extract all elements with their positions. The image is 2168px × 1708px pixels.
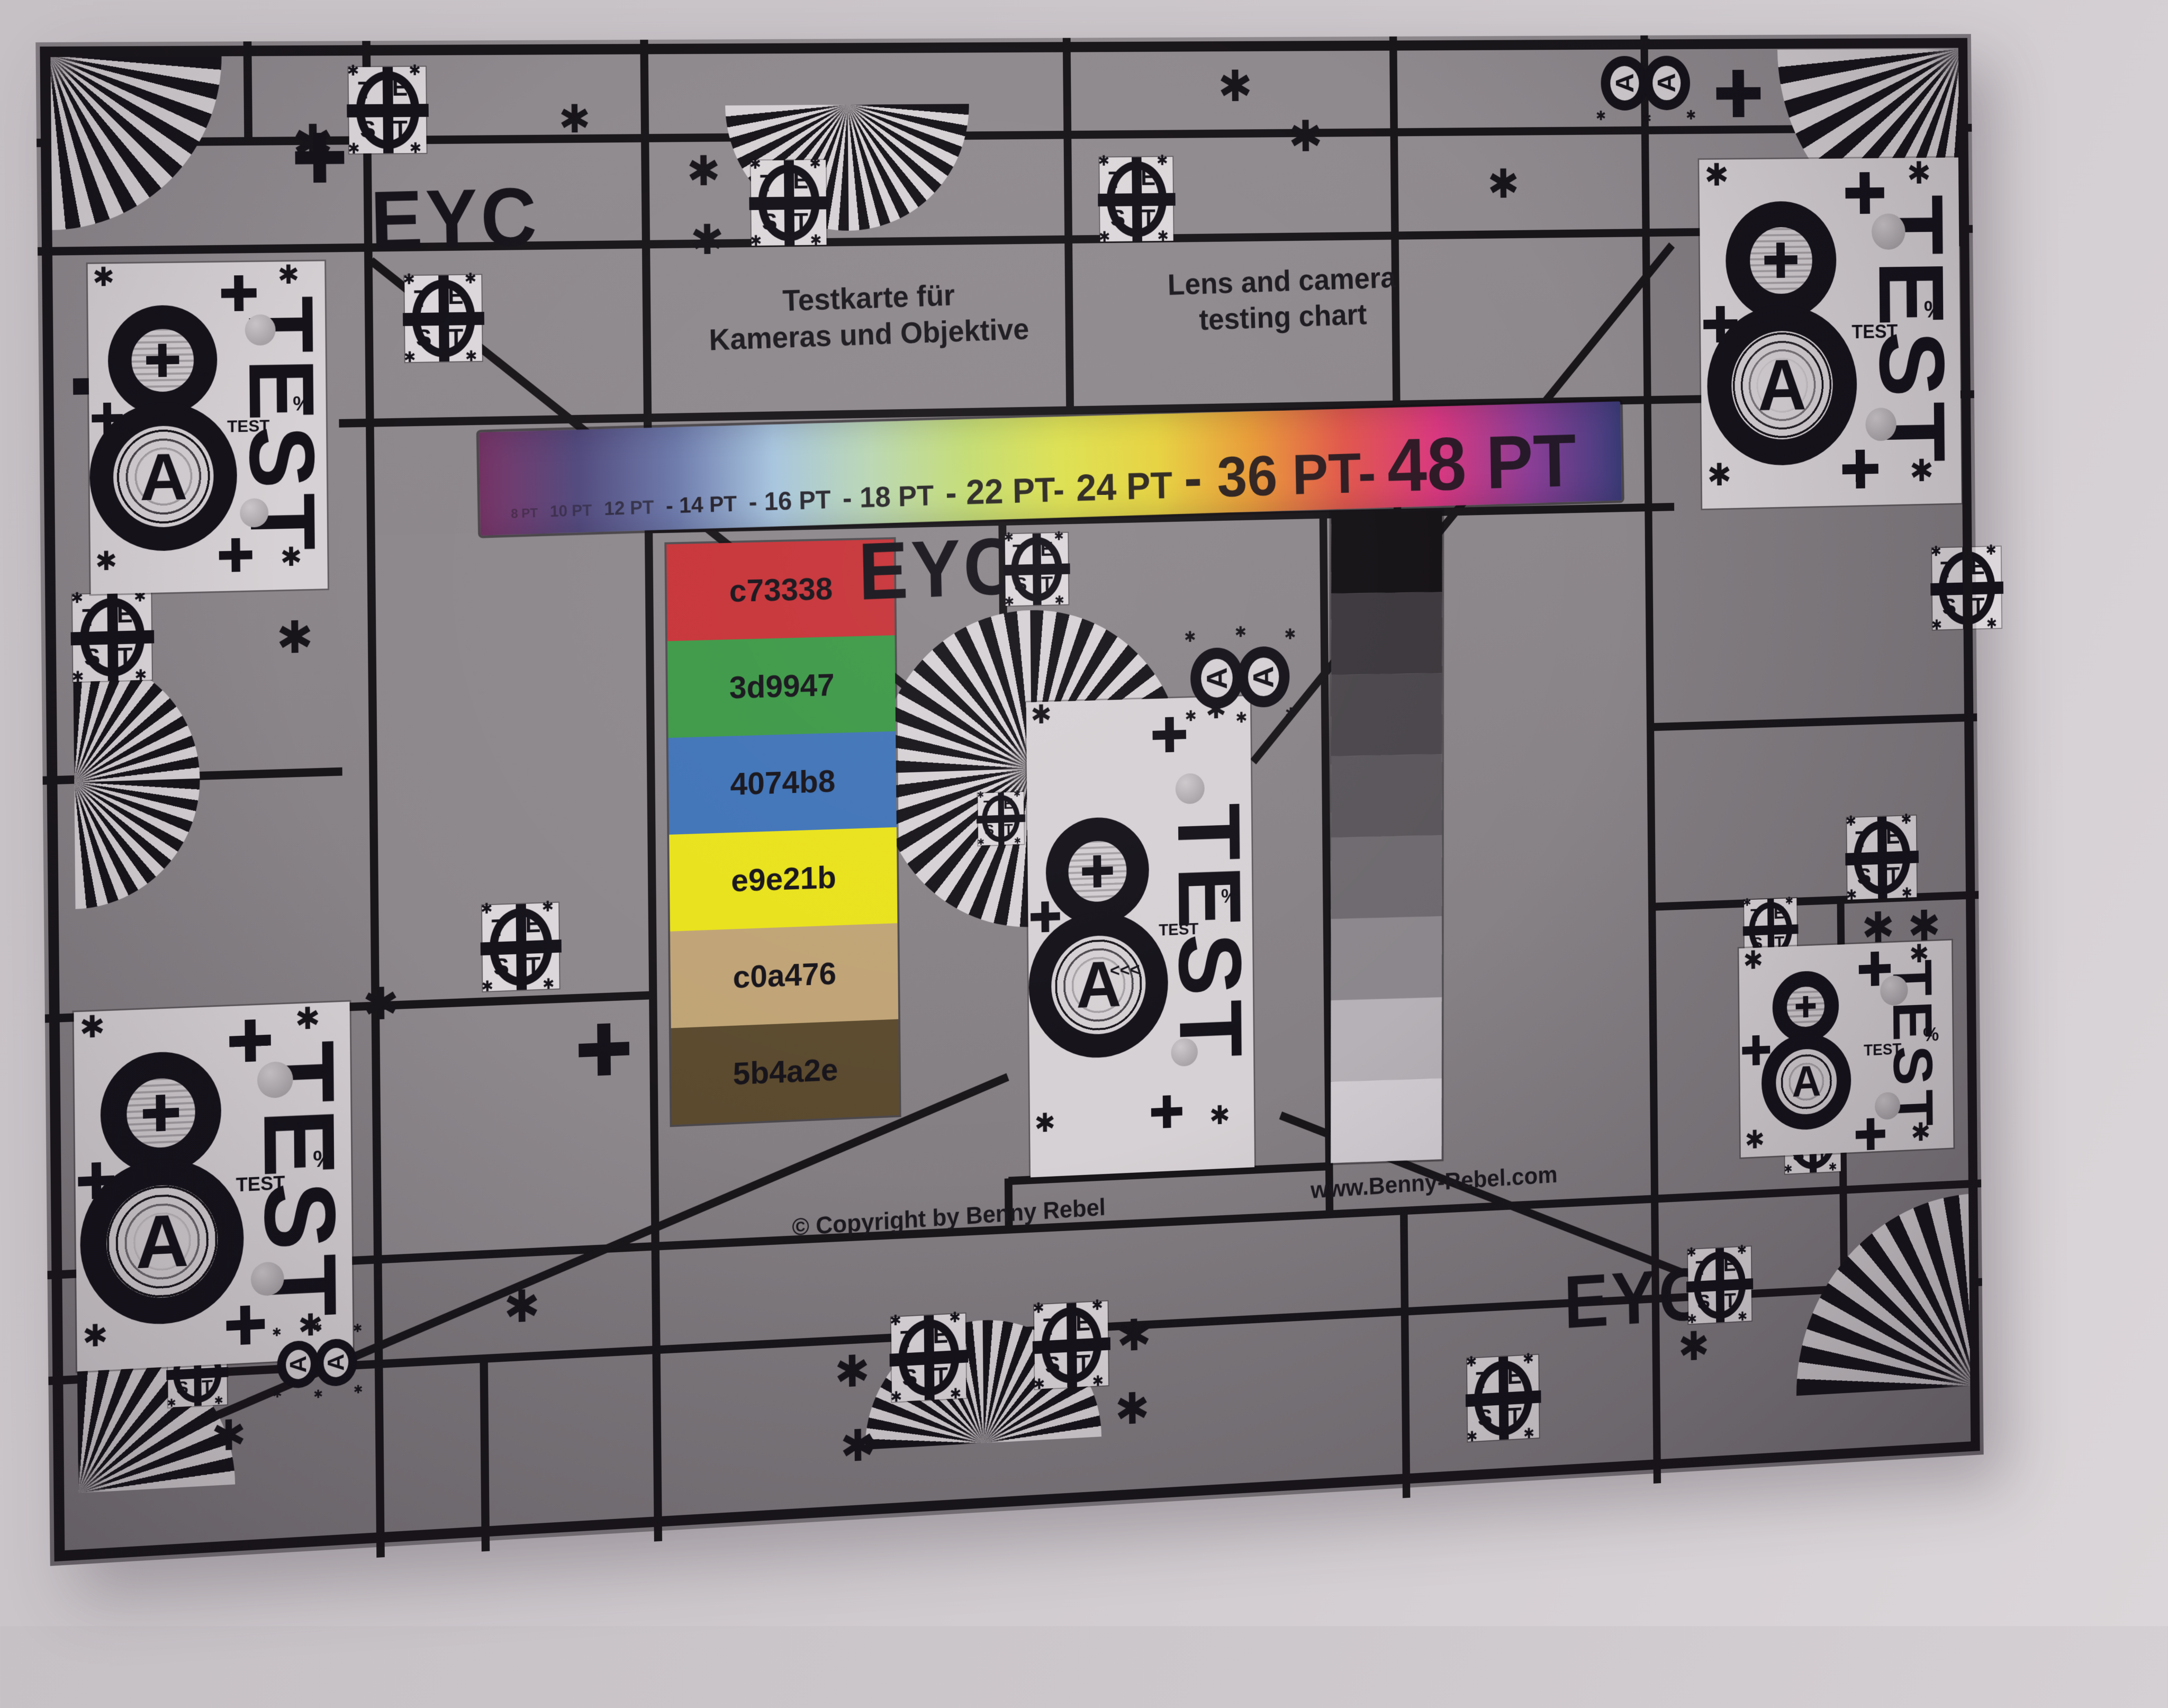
block-8-top-ring <box>100 1050 222 1176</box>
badge-letter: T <box>1695 1256 1708 1280</box>
badge-letter: T <box>1508 1402 1522 1430</box>
badge-letter: E <box>525 909 541 938</box>
double-8-letter-a: A <box>322 1353 349 1372</box>
badge-letter: T <box>82 603 97 632</box>
block-test-small-text: TEST <box>1851 321 1898 344</box>
asterisk-icon: ✱ <box>1911 1119 1931 1145</box>
badge-letter: T <box>1108 166 1122 193</box>
badge-letter: T <box>1004 821 1013 838</box>
type-scale-label: 10 PT <box>550 502 592 519</box>
badge-letter: S <box>1942 593 1956 620</box>
test-circle-badge: TEST✱✱✱✱ <box>1034 1301 1108 1389</box>
asterisk-icon: ✱ <box>1033 1375 1045 1393</box>
badge-letter: E <box>1971 553 1985 580</box>
grayscale-step <box>1331 1078 1442 1163</box>
badge-letter: E <box>1004 796 1013 813</box>
asterisk-icon: ✱ <box>1285 706 1297 720</box>
asterisk-icon: ✱ <box>1686 109 1696 122</box>
asterisk-icon: ✱ <box>1004 594 1014 609</box>
test-8-block: ATEST✱✱✱✱%TEST <box>1699 158 1962 509</box>
asterisk-icon: ✱ <box>481 900 493 917</box>
asterisk-icon: ✱ <box>71 589 84 607</box>
test-circle-badge: TEST✱✱✱✱ <box>1467 1355 1539 1442</box>
asterisk-mark: ✱ <box>1218 65 1253 109</box>
test-8-block: ATEST✱✱✱✱%TEST <box>1739 941 1953 1158</box>
cross-icon <box>78 1162 114 1200</box>
grayscale-step-wedge <box>1331 511 1442 1163</box>
asterisk-icon: ✱ <box>1185 708 1197 723</box>
cross-icon <box>143 1094 179 1132</box>
badge-letter: E <box>116 599 133 628</box>
asterisk-mark: ✱ <box>1288 115 1323 159</box>
asterisk-icon: ✱ <box>1596 110 1606 123</box>
asterisk-icon: ✱ <box>409 139 421 157</box>
asterisk-icon: ✱ <box>1014 836 1021 846</box>
badge-letter: T <box>1043 1312 1058 1340</box>
badge-letter: S <box>176 1378 188 1399</box>
double-8-mark: AA✱✱✱✱✱✱ <box>1190 643 1290 712</box>
asterisk-mark: ✱ <box>840 1423 876 1469</box>
double-8-ring: A <box>1601 56 1648 110</box>
asterisk-icon: ✱ <box>1687 1312 1697 1326</box>
badge-letter: T <box>414 284 429 313</box>
asterisk-icon: ✱ <box>403 270 415 288</box>
badge-letter: S <box>1045 1351 1060 1379</box>
cross-icon <box>1842 449 1878 489</box>
badge-letter: E <box>1141 163 1156 191</box>
badge-letter: T <box>900 1325 915 1353</box>
asterisk-icon: ✱ <box>1785 894 1793 907</box>
badge-letter: S <box>1478 1404 1493 1432</box>
cross-icon <box>229 1019 271 1062</box>
double-8-ring: A <box>314 1338 357 1387</box>
cross-icon <box>226 1305 265 1345</box>
asterisk-icon: ✱ <box>348 140 360 157</box>
siemens-star-fan <box>0 0 223 232</box>
badge-letter: E <box>448 281 464 310</box>
asterisk-icon: ✱ <box>1184 629 1196 644</box>
asterisk-icon: ✱ <box>313 1389 323 1401</box>
test-8-block: ATEST✱✱✱✱%TEST <box>88 261 328 594</box>
asterisk-icon: ✱ <box>1687 1245 1697 1260</box>
badge-letter: S <box>762 208 777 236</box>
test-circle-badge: TEST✱✱✱✱ <box>1932 547 2001 630</box>
badge-letter: T <box>1887 862 1900 889</box>
asterisk-icon: ✱ <box>465 347 477 365</box>
asterisk-icon: ✱ <box>890 1388 902 1405</box>
eyc-text-top-left: EYC <box>369 169 540 269</box>
grayscale-step <box>1331 754 1442 838</box>
badge-letter: T <box>1855 825 1868 852</box>
test-8-block: ATEST✱✱✱✱%TEST <box>74 1001 353 1371</box>
badge-letter: T <box>1476 1366 1489 1394</box>
asterisk-mark: ✱ <box>363 981 400 1027</box>
chart-cell <box>374 529 655 1259</box>
asterisk-icon: ✱ <box>1910 455 1934 486</box>
color-swatch-hex-label: 5b4a2e <box>733 1051 838 1092</box>
block-letter-a: A <box>1784 1052 1829 1111</box>
block-letter-a: A <box>120 1191 204 1293</box>
test-circle-badge: TEST✱✱✱✱ <box>404 275 482 362</box>
asterisk-icon: ✱ <box>950 1385 961 1402</box>
asterisk-icon: ✱ <box>1157 228 1169 245</box>
color-swatch-hex-label: e9e21b <box>731 859 836 899</box>
asterisk-icon: ✱ <box>1595 39 1606 52</box>
asterisk-icon: ✱ <box>1784 1163 1792 1176</box>
badge-letter: T <box>1724 1289 1736 1313</box>
asterisk-icon: ✱ <box>949 1309 961 1326</box>
test-chart-photo: Testkarte für Kameras und Objektive Lens… <box>35 34 1983 1566</box>
asterisk-icon: ✱ <box>1466 1427 1477 1445</box>
color-swatch: 3d9947 <box>667 635 896 738</box>
asterisk-icon: ✱ <box>1738 1309 1748 1324</box>
asterisk-icon: ✱ <box>409 61 421 79</box>
asterisk-icon: ✱ <box>1986 615 1998 631</box>
badge-letter: T <box>1041 573 1053 596</box>
color-swatch: 5b4a2e <box>671 1019 899 1125</box>
asterisk-icon: ✱ <box>354 1384 363 1396</box>
asterisk-icon: ✱ <box>272 1327 282 1339</box>
color-swatch-column: c733383d99474074b8e9e21bc0a4765b4a2e <box>666 539 899 1125</box>
asterisk-mark: ✱ <box>276 615 313 661</box>
type-scale-label: 24 PT <box>1076 466 1173 507</box>
badge-letter: E <box>1774 903 1785 923</box>
asterisk-icon: ✱ <box>313 1322 322 1334</box>
asterisk-icon: ✱ <box>543 975 555 992</box>
asterisk-icon: ✱ <box>1523 1350 1534 1367</box>
color-swatch: 4074b8 <box>669 731 897 835</box>
double-8-letter-a: A <box>1652 73 1681 93</box>
asterisk-icon: ✱ <box>83 1320 109 1351</box>
cross-icon <box>1859 951 1891 987</box>
badge-letter: E <box>933 1321 948 1349</box>
block-letter-a: A <box>1744 337 1820 433</box>
cross-icon <box>1742 1035 1770 1066</box>
grayscale-step <box>1331 511 1442 593</box>
type-scale-label: 8 PT <box>511 507 538 520</box>
cross-icon <box>92 402 123 434</box>
percent-mark: % <box>313 1145 334 1173</box>
cross-mark <box>1716 70 1760 118</box>
siemens-star-fan <box>0 652 201 914</box>
asterisk-icon: ✱ <box>277 261 299 288</box>
cross-mark <box>579 1023 630 1077</box>
badge-letter: S <box>984 822 994 839</box>
color-swatch-hex-label: c73338 <box>729 571 833 610</box>
double-8-letter-a: A <box>1246 665 1280 688</box>
badge-letter: T <box>934 1362 948 1390</box>
block-8-bottom-ring: A <box>1761 1032 1851 1131</box>
block-test-small-text: TEST <box>236 1172 285 1196</box>
test-circle-badge: TEST✱✱✱✱ <box>1688 1246 1751 1324</box>
asterisk-mark: ✱ <box>686 150 720 192</box>
asterisk-icon: ✱ <box>1909 941 1929 967</box>
badge-letter: E <box>392 73 408 101</box>
asterisk-icon: ✱ <box>749 156 762 173</box>
double-8-mark: AA✱✱✱✱✱✱ <box>1601 53 1690 112</box>
asterisk-icon: ✱ <box>1907 158 1931 188</box>
test-circle-badge: TEST✱✱✱✱ <box>73 593 152 682</box>
asterisk-icon: ✱ <box>810 231 821 248</box>
badge-letter: S <box>1110 204 1125 232</box>
asterisk-icon: ✱ <box>1737 1242 1747 1257</box>
cross-icon <box>146 344 179 377</box>
asterisk-icon: ✱ <box>1054 593 1064 607</box>
asterisk-mark: ✱ <box>558 100 591 139</box>
badge-letter: T <box>760 169 774 197</box>
asterisk-icon: ✱ <box>1828 1161 1837 1173</box>
block-test-small-text: TEST <box>1159 919 1198 939</box>
badge-letter: T <box>393 115 408 144</box>
asterisk-icon: ✱ <box>1523 1424 1534 1441</box>
asterisk-icon: ✱ <box>273 1388 282 1400</box>
asterisk-icon: ✱ <box>809 155 821 172</box>
double-8-ring: A <box>1643 56 1691 110</box>
cross-mark <box>295 133 345 183</box>
asterisk-mark: ✱ <box>834 1349 870 1395</box>
block-8-column: A <box>1026 699 1170 1178</box>
badge-letter: T <box>1940 556 1954 583</box>
asterisk-mark: ✱ <box>1487 164 1520 204</box>
badge-letter: S <box>1014 574 1027 597</box>
test-8-block: ATEST✱✱✱✱%TEST<<< <box>1026 696 1254 1177</box>
asterisk-icon: ✱ <box>1209 1102 1231 1129</box>
badge-letter: E <box>1886 822 1900 849</box>
type-scale-label: 12 PT <box>604 498 654 518</box>
asterisk-icon: ✱ <box>214 1394 223 1407</box>
badge-letter: S <box>360 115 376 144</box>
badge-letter: S <box>1857 863 1871 890</box>
asterisk-mark: ✱ <box>503 1284 540 1330</box>
asterisk-icon: ✱ <box>1901 884 1912 901</box>
generated-chart-marks: TEST✱✱✱✱TEST✱✱✱✱TEST✱✱✱✱TEST✱✱✱✱TEST✱✱✱✱… <box>35 34 1971 42</box>
asterisk-icon: ✱ <box>134 666 147 683</box>
test-circle-badge: TEST✱✱✱✱ <box>751 160 826 246</box>
block-letter-a: A <box>126 432 201 521</box>
badge-letter: T <box>1013 541 1025 564</box>
test-circle-badge: TEST✱✱✱✱ <box>1847 816 1917 900</box>
cross-icon <box>1152 717 1186 753</box>
badge-letter: T <box>202 1377 213 1398</box>
double-8-letter-a: A <box>1200 667 1234 690</box>
asterisk-icon: ✱ <box>1985 542 1997 558</box>
asterisk-icon: ✱ <box>1641 35 1651 49</box>
cross-icon <box>1031 901 1060 933</box>
double-8-letter-a: A <box>1610 73 1639 93</box>
badge-letter: T <box>449 323 464 352</box>
type-scale-label: - 18 PT <box>842 481 934 512</box>
badge-letter: S <box>902 1363 917 1392</box>
asterisk-icon: ✱ <box>79 1011 105 1043</box>
asterisk-icon: ✱ <box>1054 529 1064 543</box>
asterisk-icon: ✱ <box>1931 617 1943 633</box>
asterisk-icon: ✱ <box>71 667 84 685</box>
asterisk-icon: ✱ <box>1901 811 1912 828</box>
type-scale-label: - 22 PT- <box>945 472 1065 510</box>
color-swatch: e9e21b <box>669 827 897 932</box>
grayscale-step <box>1331 916 1442 1000</box>
title-german: Testkarte für Kameras und Objektive <box>658 274 1078 360</box>
badge-letter: T <box>358 76 373 104</box>
grid-line-vertical <box>243 41 252 141</box>
asterisk-icon: ✱ <box>1846 886 1857 903</box>
double-8-letter-a: A <box>285 1355 312 1374</box>
badge-letter: E <box>1076 1308 1091 1336</box>
asterisk-icon: ✱ <box>1099 228 1110 245</box>
asterisk-icon: ✱ <box>1745 1127 1765 1153</box>
percent-mark: % <box>293 392 311 415</box>
asterisk-icon: ✱ <box>93 264 115 290</box>
asterisk-icon: ✱ <box>750 232 762 249</box>
asterisk-icon: ✱ <box>1033 1299 1044 1317</box>
block-8-top-ring <box>107 304 218 416</box>
asterisk-mark: ✱ <box>211 1414 247 1458</box>
badge-letter: E <box>1507 1361 1522 1389</box>
double-8-ring: A <box>1237 646 1290 708</box>
badge-letter: T <box>526 951 541 980</box>
cross-icon <box>1151 1095 1182 1128</box>
cross-icon <box>221 275 257 311</box>
type-scale-label: - 14 PT <box>666 493 737 518</box>
badge-letter: T <box>794 207 808 236</box>
asterisk-icon: ✱ <box>280 544 302 570</box>
color-swatch: c0a476 <box>670 923 898 1028</box>
title-english: Lens and camera testing chart <box>1112 258 1451 341</box>
chevrons-mark: <<< <box>1110 960 1140 981</box>
asterisk-mark: ✱ <box>690 219 724 261</box>
asterisk-icon: ✱ <box>977 837 984 847</box>
percent-mark: % <box>1924 296 1944 323</box>
cross-icon <box>219 538 252 572</box>
grayscale-step <box>1331 835 1442 919</box>
percent-mark: % <box>1221 885 1238 908</box>
color-swatch-hex-label: 3d9947 <box>729 667 835 707</box>
badge-letter: E <box>1040 538 1053 561</box>
badge-letter: S <box>493 953 509 981</box>
asterisk-icon: ✱ <box>464 270 476 287</box>
percent-mark: % <box>1923 1024 1939 1046</box>
color-swatch-hex-label: 4074b8 <box>730 763 835 802</box>
color-swatch-hex-label: c0a476 <box>733 955 836 996</box>
asterisk-icon: ✱ <box>1284 627 1296 641</box>
badge-letter: T <box>1077 1349 1090 1377</box>
test-circle-badge: TEST✱✱✱✱ <box>891 1314 966 1402</box>
badge-letter: T <box>1972 592 1985 619</box>
asterisk-icon: ✱ <box>1466 1353 1477 1370</box>
asterisk-icon: ✱ <box>95 547 118 574</box>
block-8-top-ring <box>1045 816 1150 927</box>
block-8-top-ring <box>1725 201 1837 320</box>
badge-letter: E <box>1723 1252 1736 1276</box>
asterisk-icon: ✱ <box>1031 702 1052 728</box>
asterisk-icon: ✱ <box>1743 896 1751 908</box>
block-letter-a: A <box>1063 941 1134 1028</box>
cross-icon <box>1764 242 1797 278</box>
asterisk-icon: ✱ <box>353 1323 363 1335</box>
asterisk-icon: ✱ <box>1098 152 1109 169</box>
cross-icon <box>1796 996 1816 1018</box>
asterisk-icon: ✱ <box>1014 789 1020 799</box>
asterisk-icon: ✱ <box>1092 1372 1104 1389</box>
asterisk-mark: ✱ <box>1115 1387 1150 1432</box>
eyc-text-center: EYC <box>857 519 1021 619</box>
asterisk-icon: ✱ <box>1743 947 1763 973</box>
badge-letter: S <box>1697 1290 1710 1314</box>
badge-letter: T <box>1142 204 1155 231</box>
asterisk-icon: ✱ <box>1707 459 1731 491</box>
asterisk-icon: ✱ <box>1034 1110 1055 1137</box>
cross-icon <box>1703 306 1738 343</box>
grayscale-step <box>1331 673 1442 756</box>
double-8-ring: A <box>277 1340 320 1389</box>
block-8-bottom-ring: A <box>1028 910 1169 1061</box>
asterisk-icon: ✱ <box>1685 39 1695 52</box>
grayscale-step <box>1331 592 1442 675</box>
asterisk-icon: ✱ <box>1157 152 1168 169</box>
block-test-small-text: TEST <box>227 416 270 436</box>
badge-letter: T <box>118 642 133 671</box>
cross-icon <box>1845 172 1884 214</box>
asterisk-icon: ✱ <box>1235 625 1246 639</box>
type-scale-label: - 36 PT- <box>1184 445 1377 507</box>
asterisk-icon: ✱ <box>347 62 359 79</box>
asterisk-icon: ✱ <box>977 790 984 801</box>
asterisk-icon: ✱ <box>404 348 416 366</box>
asterisk-icon: ✱ <box>1704 159 1729 191</box>
grayscale-step <box>1331 997 1442 1082</box>
badge-letter: S <box>415 324 431 353</box>
test-circle-badge: TEST✱✱✱✱ <box>978 792 1024 845</box>
test-circle-badge: TEST✱✱✱✱ <box>1099 157 1173 241</box>
asterisk-icon: ✱ <box>481 977 493 995</box>
badge-letter: T <box>491 913 506 942</box>
test-circle-badge: TEST✱✱✱✱ <box>482 903 559 991</box>
asterisk-icon: ✱ <box>295 1003 320 1034</box>
asterisk-icon: ✱ <box>890 1312 901 1329</box>
badge-letter: S <box>84 643 101 672</box>
block-test-small-text: TEST <box>1864 1040 1902 1060</box>
asterisk-icon: ✱ <box>1091 1296 1103 1314</box>
asterisk-icon: ✱ <box>1641 112 1652 125</box>
badge-letter: T <box>983 798 992 815</box>
test-circle-badge: TEST✱✱✱✱ <box>1005 533 1069 606</box>
cross-icon <box>1856 1118 1885 1151</box>
asterisk-icon: ✱ <box>1930 543 1941 559</box>
asterisk-icon: ✱ <box>1235 710 1247 725</box>
type-scale-label: 48 PT <box>1387 423 1577 503</box>
badge-letter: E <box>793 166 808 194</box>
cross-icon <box>1082 854 1113 888</box>
asterisk-icon: ✱ <box>1004 530 1014 544</box>
double-8-ring: A <box>1190 647 1243 709</box>
badge-letter: T <box>1750 906 1760 926</box>
type-scale-label: - 16 PT <box>748 487 831 515</box>
asterisk-icon: ✱ <box>167 1397 176 1410</box>
asterisk-icon: ✱ <box>1846 812 1857 829</box>
double-8-mark: AA✱✱✱✱✱✱ <box>277 1336 357 1391</box>
block-8-top-ring <box>1772 970 1839 1043</box>
asterisk-icon: ✱ <box>541 898 554 915</box>
test-circle-badge: TEST✱✱✱✱ <box>348 67 426 153</box>
asterisk-mark: ✱ <box>1116 1313 1151 1358</box>
